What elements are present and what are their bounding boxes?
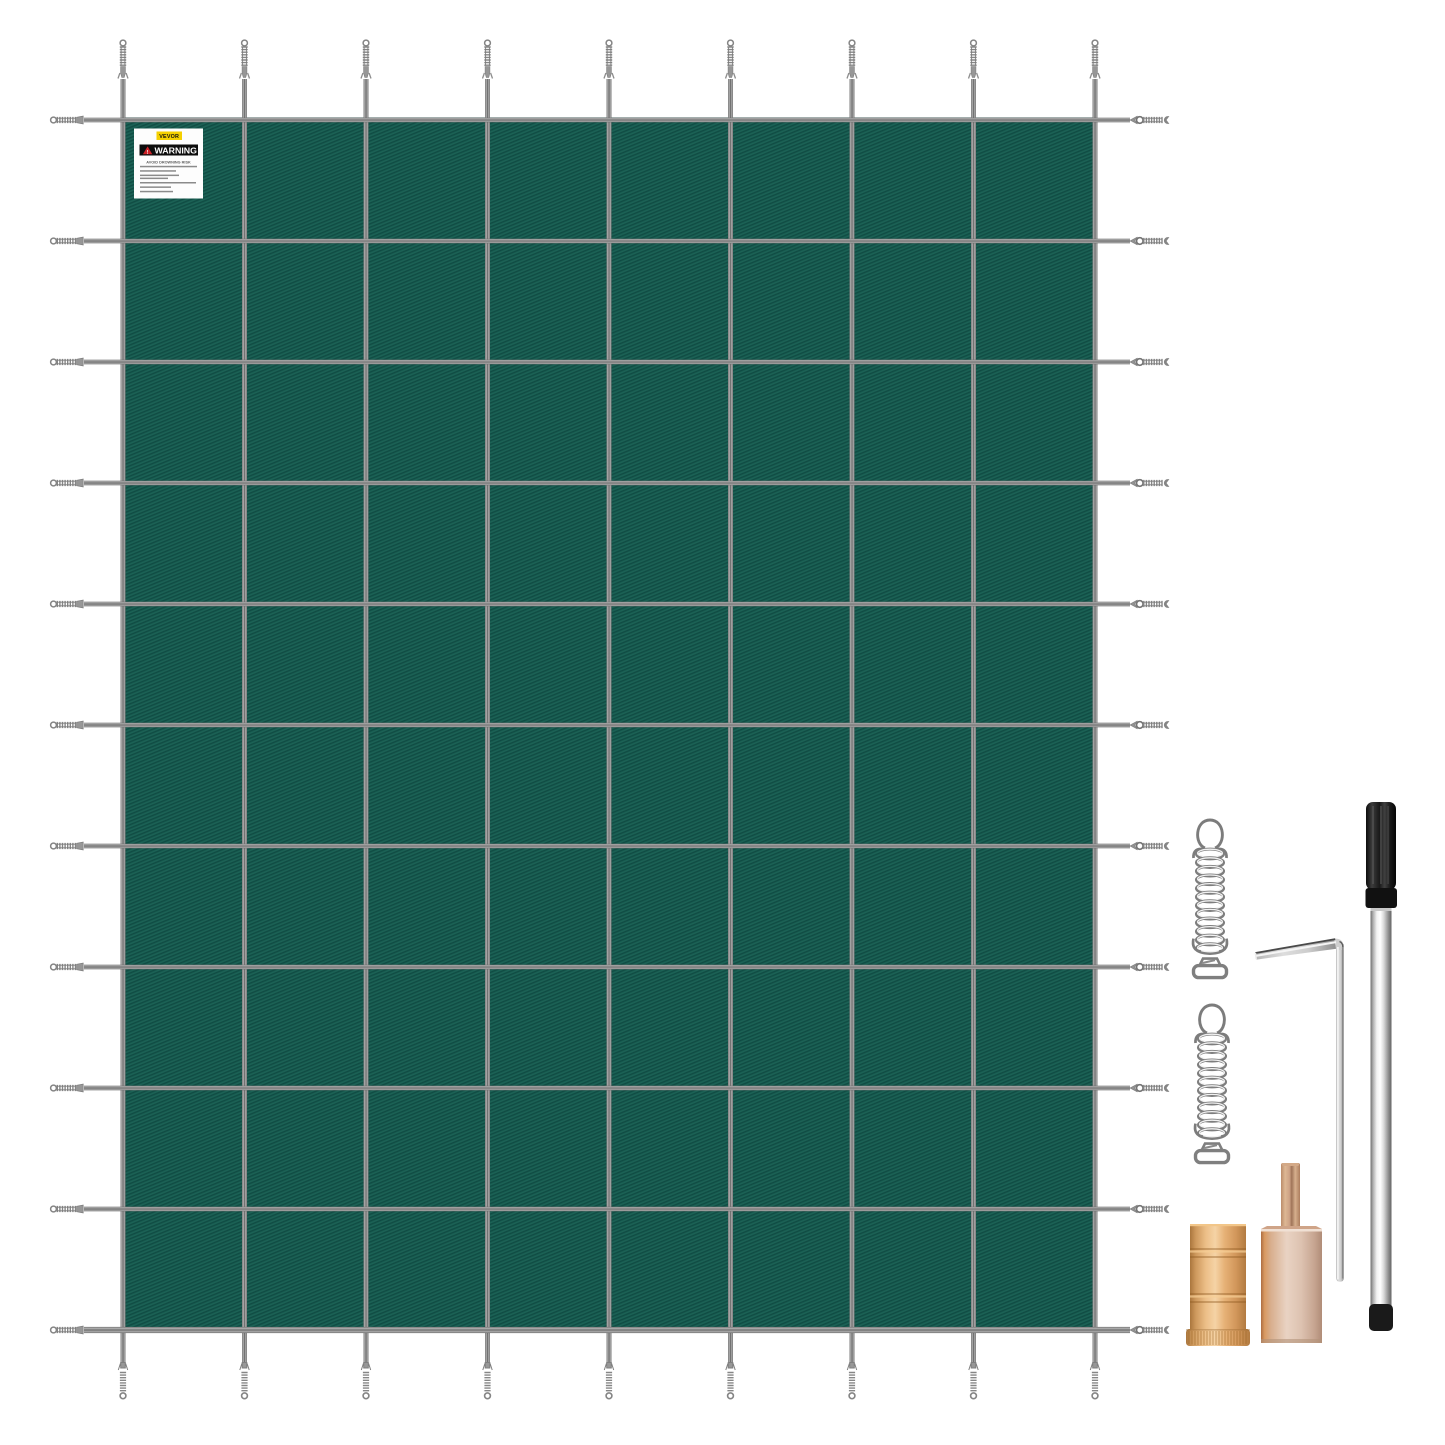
svg-text:AVOID DROWNING RISK: AVOID DROWNING RISK — [146, 160, 191, 164]
svg-text:VEVOR: VEVOR — [159, 134, 179, 140]
svg-text:WARNING: WARNING — [155, 146, 198, 156]
